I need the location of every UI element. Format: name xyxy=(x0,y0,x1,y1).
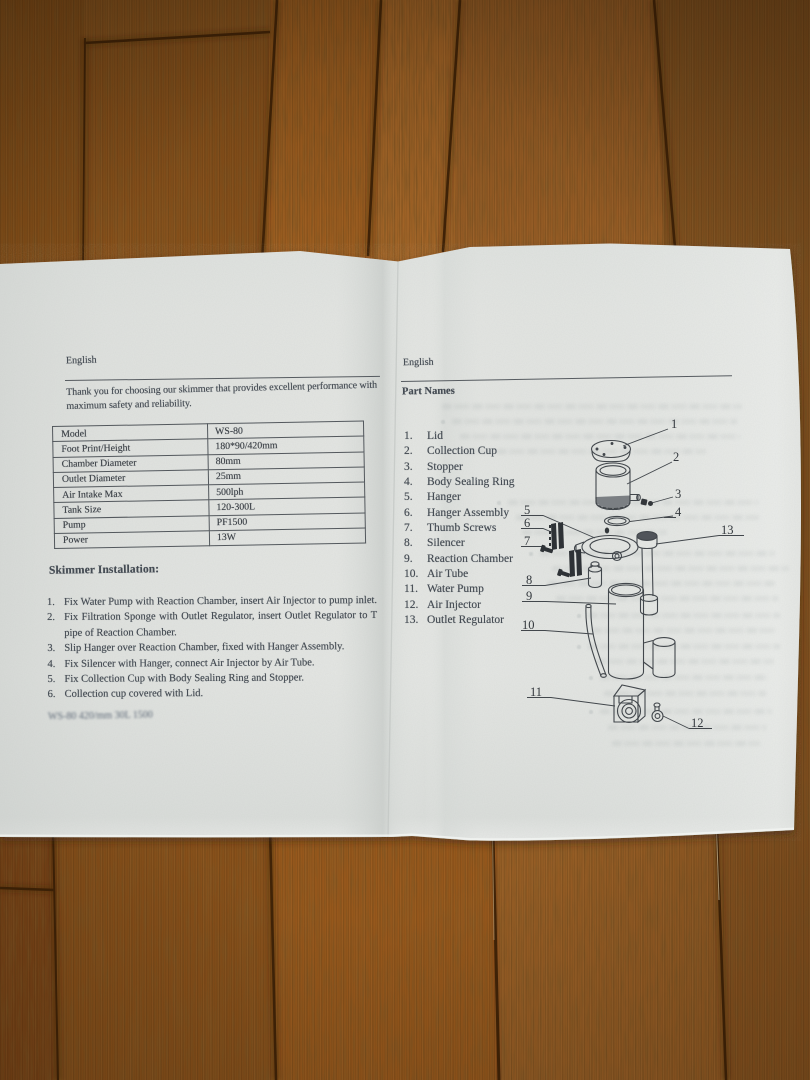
svg-text:9: 9 xyxy=(526,589,532,603)
svg-text:10: 10 xyxy=(522,618,535,632)
svg-text:4: 4 xyxy=(675,505,682,519)
svg-text:8: 8 xyxy=(526,573,532,587)
svg-text:6: 6 xyxy=(524,516,530,530)
svg-text:2: 2 xyxy=(673,450,679,464)
svg-text:13: 13 xyxy=(721,523,734,537)
svg-text:3: 3 xyxy=(675,487,681,501)
svg-text:1: 1 xyxy=(671,417,677,431)
svg-text:7: 7 xyxy=(524,534,530,548)
svg-text:12: 12 xyxy=(691,716,704,730)
svg-text:11: 11 xyxy=(530,685,542,699)
svg-text:5: 5 xyxy=(524,503,530,517)
